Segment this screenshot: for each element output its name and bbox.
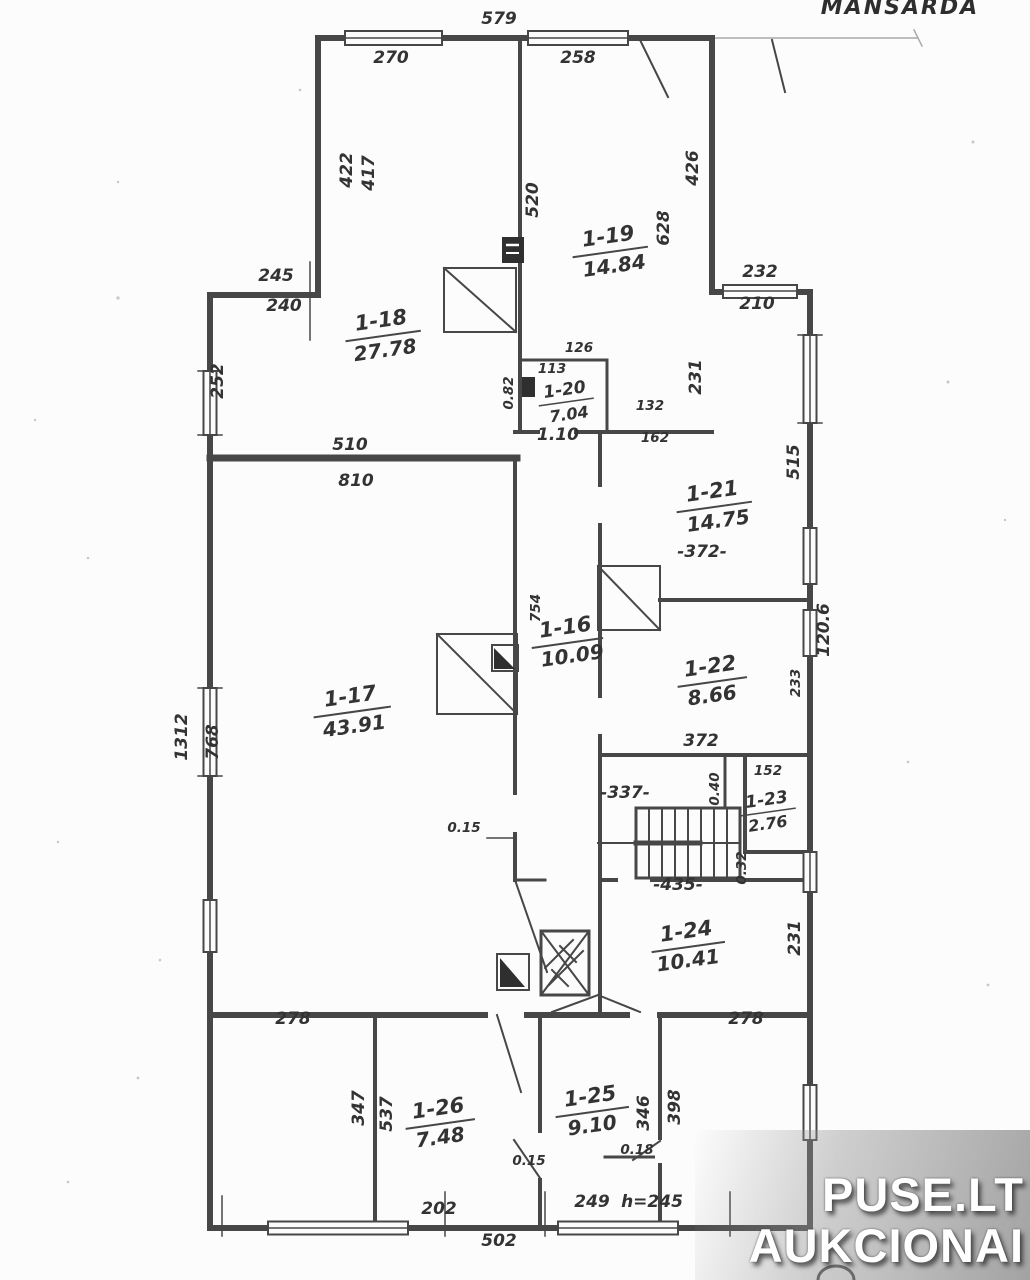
dim-1206: 120.6 xyxy=(814,603,834,657)
dim-346: 346 xyxy=(634,1095,654,1131)
room-area: 10.41 xyxy=(655,944,721,977)
dim-233: 233 xyxy=(788,669,804,697)
dim-426: 426 xyxy=(683,150,703,187)
dim-278-right: 278 xyxy=(728,1009,764,1029)
dim-top-window-left: 270 xyxy=(373,48,409,68)
dim-162: 162 xyxy=(641,430,669,446)
dim-278-left: 278 xyxy=(275,1009,311,1029)
dim-202: 202 xyxy=(421,1199,457,1219)
dimension-labels: 579 270 258 422 417 245 240 252 510 810 … xyxy=(172,9,834,1251)
dim-110: 1.10 xyxy=(537,425,579,445)
scanned-floor-plan-page: MANSARDA 1-18 27.78 1-19 14.84 1-20 7.04… xyxy=(0,0,1030,1280)
floor-plan-drawing: MANSARDA 1-18 27.78 1-19 14.84 1-20 7.04… xyxy=(0,0,1030,1280)
dim-126: 126 xyxy=(565,340,593,356)
room-id: 1-22 xyxy=(682,651,737,682)
dim-422: 422 xyxy=(337,152,357,189)
watermark: PUSE.LT AUKCIONAI xyxy=(695,1130,1030,1280)
dim-337: -337- xyxy=(600,783,650,803)
dim-768: 768 xyxy=(203,724,223,760)
room-label-1-21: 1-21 14.75 xyxy=(674,474,755,538)
room-label-1-20: 1-20 7.04 xyxy=(536,376,596,427)
dim-h245: h=245 xyxy=(621,1192,683,1212)
watermark-line1: PUSE.LT xyxy=(822,1169,1024,1221)
room-area: 7.04 xyxy=(548,402,590,426)
room-id: 1-21 xyxy=(684,476,739,507)
dim-113: 113 xyxy=(538,361,566,377)
dim-515: 515 xyxy=(784,444,804,480)
dim-152: 152 xyxy=(754,763,782,779)
dim-754: 754 xyxy=(528,594,544,622)
dim-top-window-right: 258 xyxy=(560,48,596,68)
room-label-1-26: 1-26 7.48 xyxy=(403,1092,478,1154)
staircase xyxy=(598,808,740,878)
dim-232: 232 xyxy=(742,262,778,282)
room-area: 10.09 xyxy=(539,639,605,672)
dim-245: 245 xyxy=(258,266,294,286)
room-id: 1-19 xyxy=(580,221,635,252)
room-id: 1-17 xyxy=(322,681,378,712)
page-title: MANSARDA xyxy=(821,0,979,20)
watermark-line2: AUKCIONAI xyxy=(749,1220,1024,1272)
dim-1312: 1312 xyxy=(172,713,192,760)
flue-icon xyxy=(502,237,524,263)
dim-510: 510 xyxy=(332,435,368,455)
dim-240: 240 xyxy=(266,296,302,316)
flue-triangle-icon xyxy=(494,648,515,669)
dim-252: 252 xyxy=(208,363,228,399)
room-area: 2.76 xyxy=(747,811,789,835)
dim-417: 417 xyxy=(359,155,379,192)
room-id: 1-23 xyxy=(744,787,789,813)
dim-082: 0.82 xyxy=(501,376,517,409)
dim-015-corridor: 0.15 xyxy=(447,820,480,836)
room-label-1-17: 1-17 43.91 xyxy=(311,679,394,743)
dim-537: 537 xyxy=(377,1096,397,1132)
dim-018: 0.18 xyxy=(620,1142,653,1158)
room-id: 1-25 xyxy=(562,1081,617,1112)
dim-231-upper: 231 xyxy=(686,359,706,395)
room-id: 1-18 xyxy=(353,305,408,336)
dim-628: 628 xyxy=(654,210,674,246)
room-label-1-19: 1-19 14.84 xyxy=(570,219,651,283)
dim-015-r26: 0.15 xyxy=(512,1153,545,1169)
dim-249: 249 xyxy=(574,1192,610,1212)
dim-top-total: 579 xyxy=(481,9,517,29)
flue-icon xyxy=(522,377,535,397)
dim-231-lower: 231 xyxy=(785,920,805,956)
small-partitions xyxy=(515,360,725,1157)
dim-520: 520 xyxy=(523,182,543,218)
room-label-1-18: 1-18 27.78 xyxy=(343,303,424,367)
dim-398: 398 xyxy=(665,1089,685,1125)
room-id: 1-20 xyxy=(542,377,587,403)
dim-347: 347 xyxy=(349,1090,369,1126)
chimney-hatch xyxy=(541,931,589,995)
dim-435: -435- xyxy=(653,875,703,895)
room-label-1-24: 1-24 10.41 xyxy=(649,914,728,977)
dim-502: 502 xyxy=(481,1231,517,1251)
dim-032: 0.32 xyxy=(734,851,750,884)
dim-372-r22: 372 xyxy=(683,731,719,751)
dim-132: 132 xyxy=(636,398,664,414)
room-id: 1-16 xyxy=(537,612,592,643)
dim-040: 0.40 xyxy=(707,772,723,805)
room-id: 1-24 xyxy=(658,916,713,947)
room-label-1-22: 1-22 8.66 xyxy=(675,650,750,712)
room-label-1-25: 1-25 9.10 xyxy=(553,1079,632,1142)
room-id: 1-26 xyxy=(410,1093,465,1124)
flue-triangle-icon xyxy=(500,958,525,987)
dim-210: 210 xyxy=(739,294,775,314)
dim-810: 810 xyxy=(338,471,374,491)
dim-372-r21: -372- xyxy=(677,542,727,562)
room-label-1-23: 1-23 2.76 xyxy=(738,786,797,836)
